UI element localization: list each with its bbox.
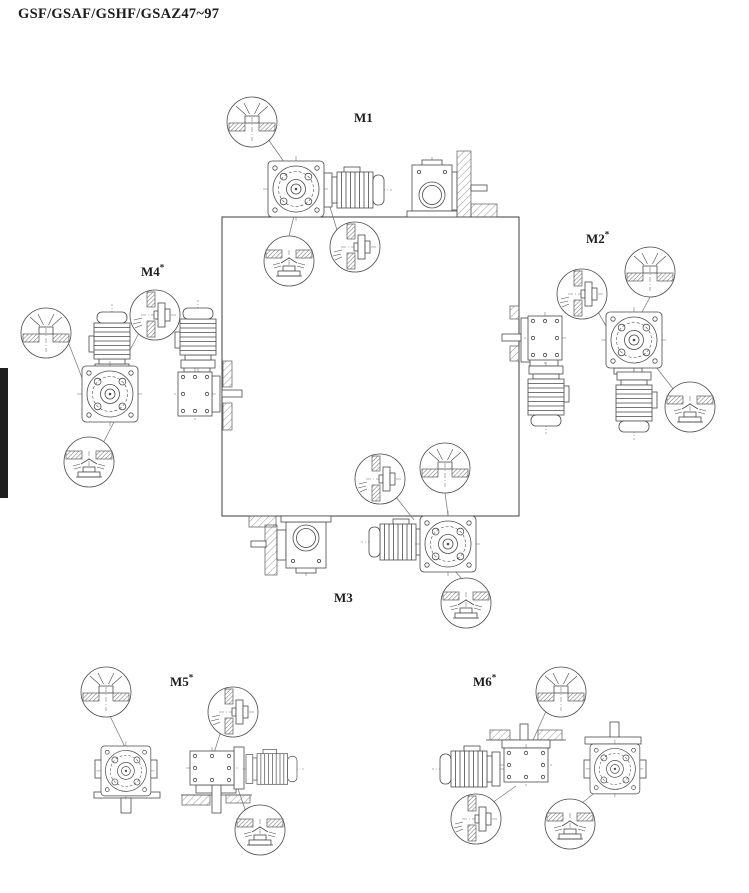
gearmotor-m2-front-view	[601, 307, 667, 440]
gearmotor-m2-side-view	[502, 306, 569, 434]
oil-drain-plug-icon	[441, 578, 491, 628]
mounting-label-m4: M4*	[141, 264, 164, 280]
gearmotor-m3-front-view	[361, 511, 481, 577]
position-m6-group	[432, 667, 646, 849]
gearmotor-m6-side-view	[432, 724, 566, 787]
oil-drain-plug-icon	[235, 805, 285, 855]
gearmotor-m1-front-view	[263, 156, 392, 222]
oil-level-plug-icon	[130, 290, 180, 340]
oil-drain-plug-icon	[264, 236, 314, 286]
oil-level-plug-icon	[330, 222, 380, 272]
oil-drain-plug-icon	[545, 799, 595, 849]
mounting-label-m3: M3	[334, 590, 353, 606]
oil-level-plug-icon	[451, 794, 501, 844]
gearmotor-m6-front-view	[584, 722, 646, 798]
breather-plug-icon	[81, 667, 131, 717]
gearmotor-m4-side-view	[174, 300, 242, 430]
oil-drain-plug-icon	[665, 382, 715, 432]
oil-level-plug-icon	[208, 687, 258, 737]
gearmotor-m5-front-view	[94, 742, 160, 813]
position-m3-group	[249, 443, 491, 628]
breather-plug-icon	[420, 443, 470, 493]
mounting-label-m6: M6*	[473, 674, 496, 690]
breather-plug-icon	[536, 667, 586, 717]
breather-plug-icon	[21, 308, 71, 358]
gearmotor-m1-side-view	[407, 151, 497, 217]
oil-level-plug-icon	[557, 269, 607, 319]
breather-plug-icon	[625, 247, 675, 297]
gearmotor-m5-side-view	[181, 747, 304, 813]
breather-plug-icon	[227, 97, 277, 147]
oil-drain-plug-icon	[64, 437, 114, 487]
catalog-page: GSF/GSAF/GSHF/GSAZ47~97	[0, 0, 749, 893]
position-m2-group	[502, 247, 715, 440]
position-m5-group	[81, 667, 304, 855]
mounting-label-m1: M1	[354, 110, 373, 126]
position-m4-group	[21, 290, 242, 487]
mounting-label-m5: M5*	[170, 674, 193, 690]
mounting-label-m2: M2*	[586, 231, 609, 247]
gearmotor-m3-side-view	[249, 516, 331, 576]
mounting-positions-diagram	[0, 0, 749, 893]
oil-level-plug-icon	[355, 454, 405, 504]
